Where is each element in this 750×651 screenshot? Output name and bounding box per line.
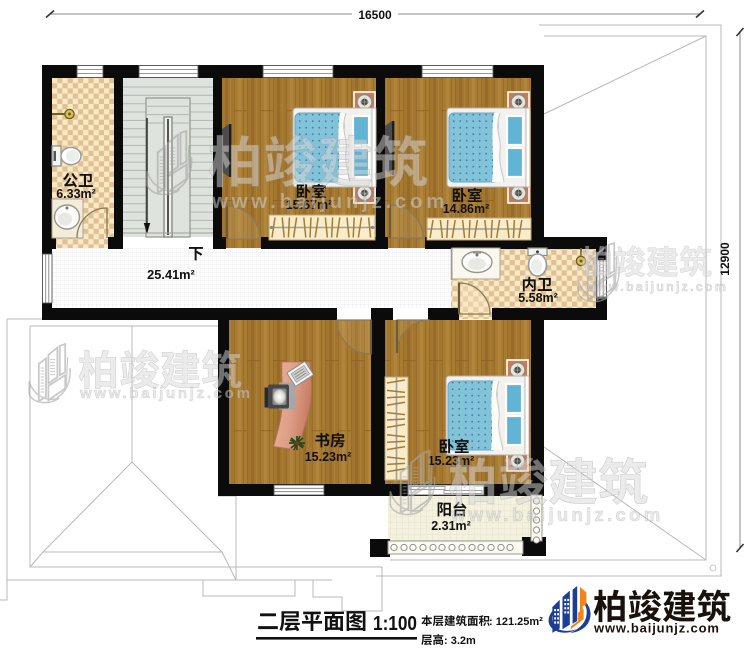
svg-text:www.baijunjz.com: www.baijunjz.com bbox=[79, 385, 253, 402]
svg-text:5.58m²: 5.58m² bbox=[518, 291, 558, 305]
svg-text:25.41m²: 25.41m² bbox=[147, 267, 195, 282]
svg-text:www.baijunjz.com: www.baijunjz.com bbox=[211, 190, 448, 213]
svg-text:: 121.25m²: : 121.25m² bbox=[489, 616, 543, 628]
svg-text:www.baijunjz.com: www.baijunjz.com bbox=[450, 504, 663, 525]
svg-text:12900: 12900 bbox=[718, 242, 732, 276]
svg-text:14.86m²: 14.86m² bbox=[443, 202, 490, 216]
svg-text:www.baijunjz.com: www.baijunjz.com bbox=[584, 280, 728, 294]
svg-text:www.baijunjz.com: www.baijunjz.com bbox=[593, 621, 720, 636]
svg-text:1:100: 1:100 bbox=[373, 613, 417, 635]
svg-text:: 3.2m: : 3.2m bbox=[444, 635, 476, 647]
svg-text:15.23m²: 15.23m² bbox=[305, 450, 352, 464]
svg-text:15.23m²: 15.23m² bbox=[428, 454, 475, 468]
svg-text:16500: 16500 bbox=[358, 8, 392, 22]
svg-text:6.33m²: 6.33m² bbox=[56, 187, 96, 201]
